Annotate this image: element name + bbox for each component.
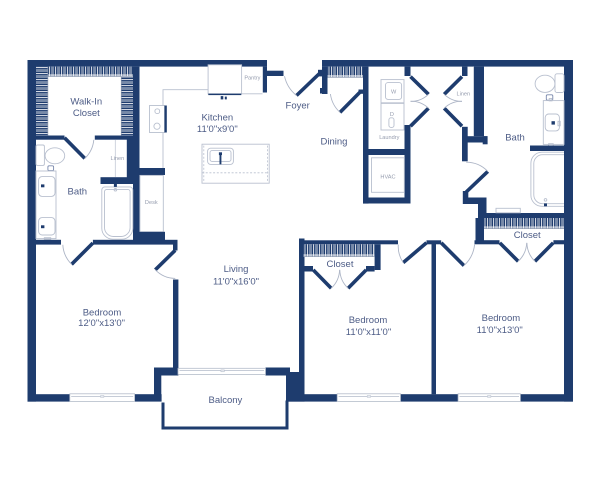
svg-text:HVAC: HVAC (380, 175, 395, 181)
svg-text:Living: Living (224, 264, 249, 275)
svg-text:Kitchen: Kitchen (201, 113, 233, 124)
svg-text:Bath: Bath (68, 187, 88, 198)
svg-text:11'0"x9'0": 11'0"x9'0" (197, 124, 238, 135)
svg-text:Foyer: Foyer (286, 101, 310, 112)
svg-text:Pantry: Pantry (244, 76, 260, 82)
svg-text:11'0"x16'0": 11'0"x16'0" (213, 276, 259, 287)
svg-text:12'0"x13'0": 12'0"x13'0" (78, 318, 125, 329)
svg-text:11'0"x11'0": 11'0"x11'0" (346, 327, 391, 338)
svg-text:Bath: Bath (505, 133, 525, 144)
svg-text:Bedroom: Bedroom (83, 307, 122, 318)
svg-text:Linen: Linen (111, 156, 125, 162)
svg-text:Closet: Closet (514, 230, 541, 241)
svg-text:Desk: Desk (145, 200, 158, 206)
svg-text:Balcony: Balcony (208, 395, 242, 406)
svg-text:D: D (390, 112, 394, 118)
svg-text:Closet: Closet (327, 259, 354, 270)
svg-text:W: W (391, 89, 397, 95)
svg-text:Laundry: Laundry (379, 135, 399, 141)
svg-text:Linen: Linen (456, 92, 470, 98)
svg-text:11'0"x13'0": 11'0"x13'0" (477, 325, 523, 336)
svg-text:Walk-In: Walk-In (70, 97, 102, 108)
svg-text:Bedroom: Bedroom (349, 315, 388, 326)
svg-text:Bedroom: Bedroom (482, 313, 521, 324)
svg-text:Closet: Closet (73, 108, 100, 119)
svg-text:Dining: Dining (321, 137, 348, 148)
